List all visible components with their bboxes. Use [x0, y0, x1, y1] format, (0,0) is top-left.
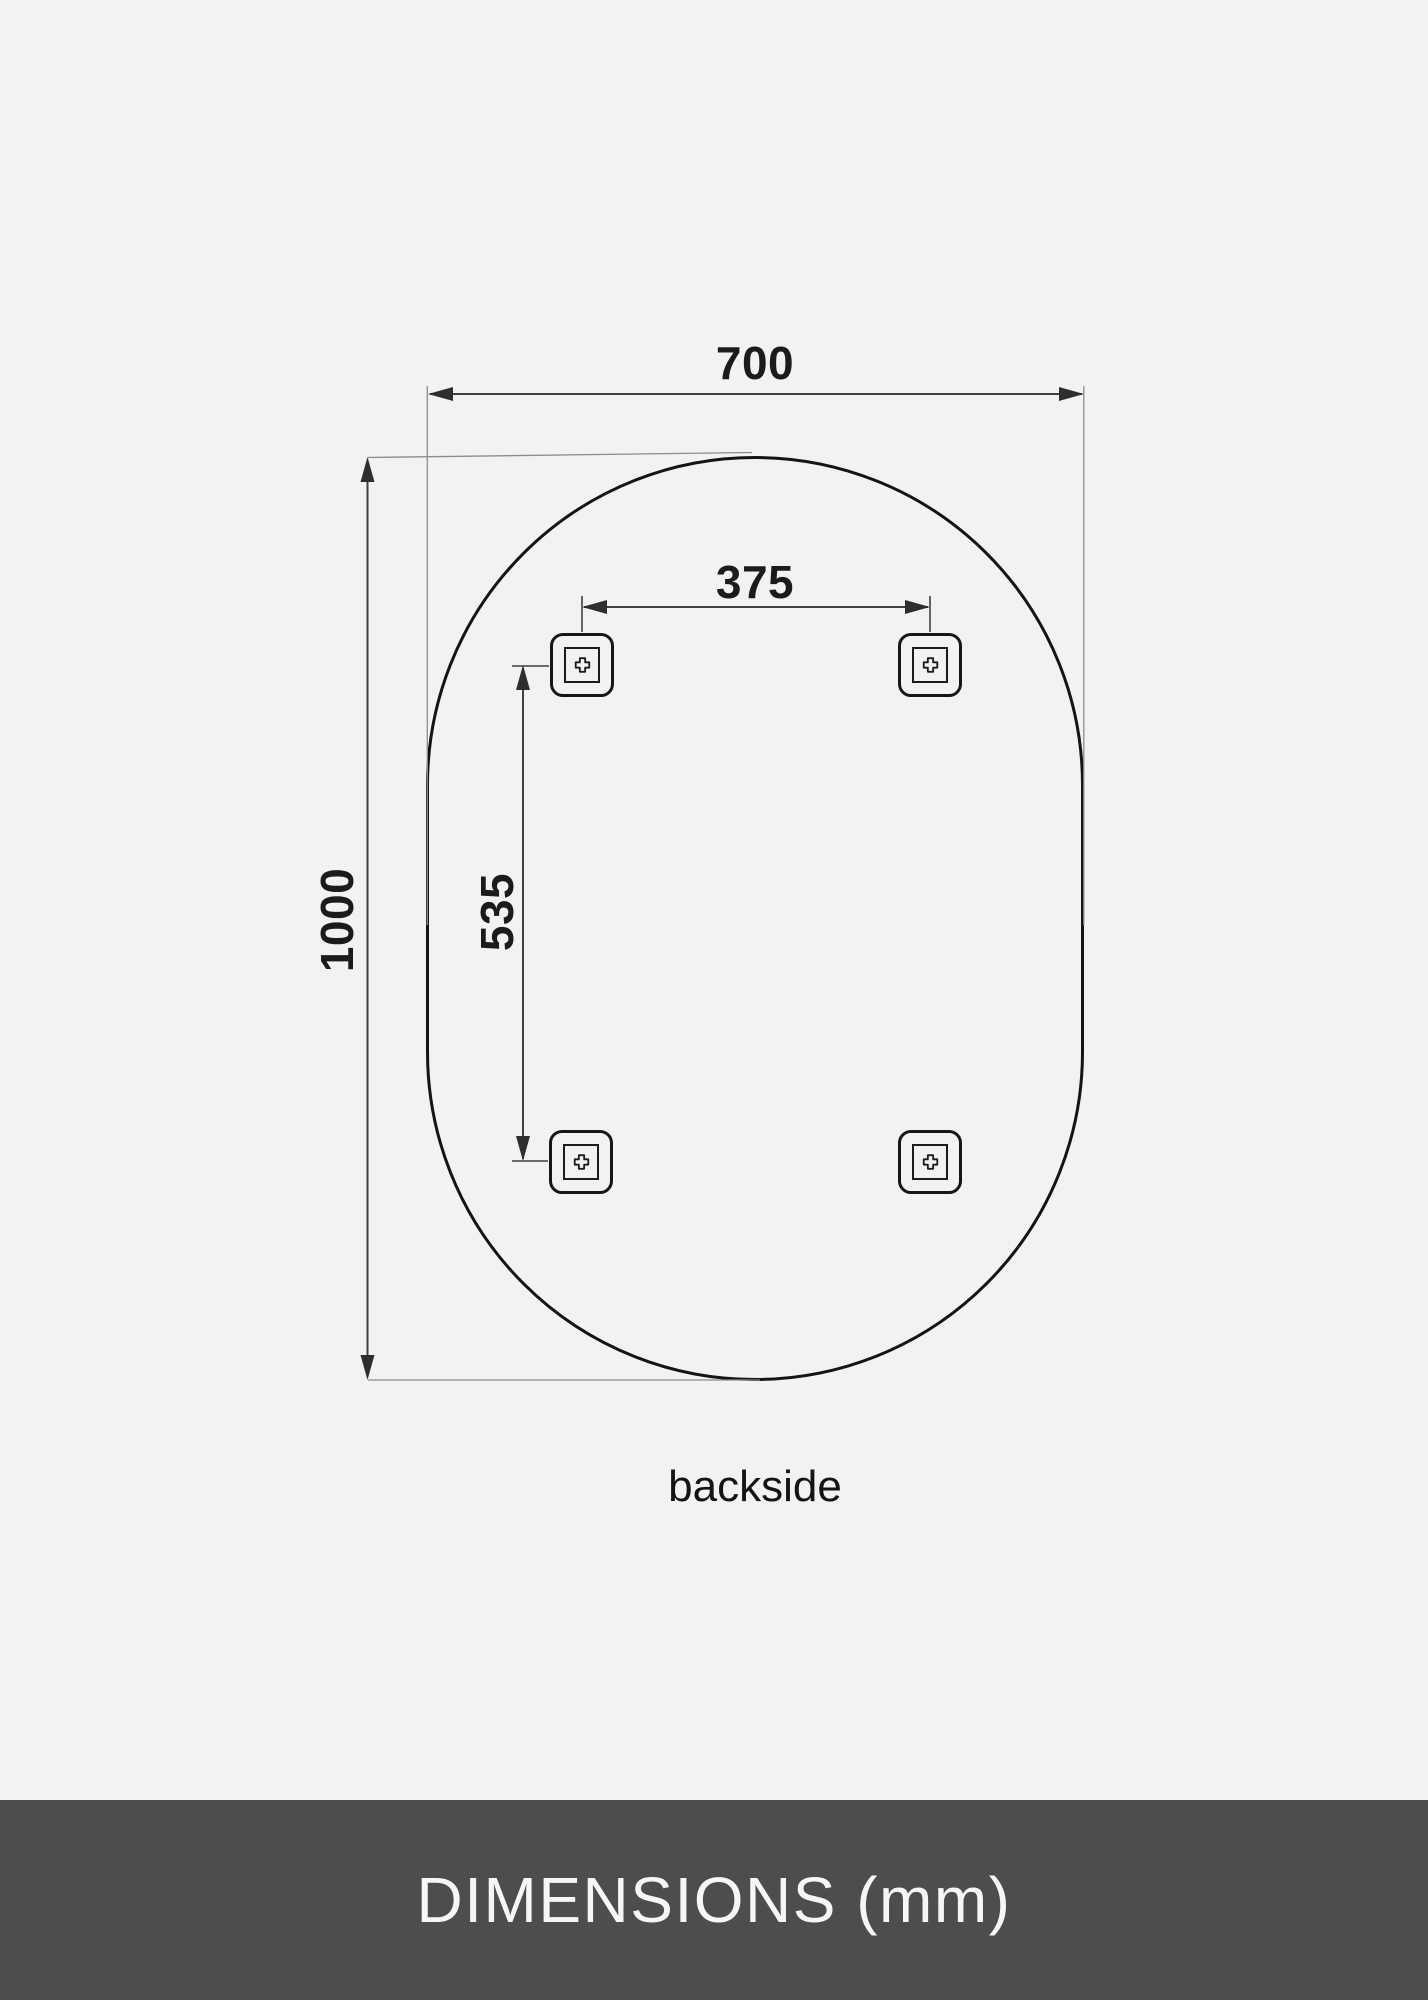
screw-cross-icon [571, 654, 594, 676]
dim-label-overall-height: 1000 [310, 868, 364, 972]
arrowhead-top-icon [516, 665, 530, 690]
arrowhead-left-icon [582, 600, 607, 614]
arrowhead-bottom-icon [361, 1355, 375, 1380]
mounting-bracket-bottom-left [549, 1130, 613, 1194]
view-label: backside [668, 1462, 842, 1512]
mounting-bracket-top-right [898, 633, 962, 697]
dimension-diagram-page: 700 1000 375 535 backs [0, 0, 1428, 2000]
bracket-inner-plate [563, 1144, 599, 1180]
dim-label-overall-width: 700 [716, 336, 794, 390]
dim-label-bracket-spacing-horizontal: 375 [716, 555, 794, 609]
dim-overall-height [361, 453, 761, 1381]
screw-cross-icon [919, 1151, 942, 1173]
arrowhead-top-icon [361, 457, 375, 482]
bracket-inner-plate [564, 647, 600, 683]
dim-overall-width [427, 386, 1084, 925]
arrowhead-bottom-icon [516, 1136, 530, 1161]
dimension-annotations [0, 0, 1428, 2000]
mounting-bracket-top-left [550, 633, 614, 697]
screw-cross-icon [570, 1151, 593, 1173]
arrowhead-right-icon [1059, 387, 1084, 401]
screw-cross-icon [919, 654, 942, 676]
mounting-bracket-bottom-right [898, 1130, 962, 1194]
bracket-inner-plate [912, 1144, 948, 1180]
dim-label-bracket-spacing-vertical: 535 [470, 873, 524, 951]
footer-bar: DIMENSIONS (mm) [0, 1800, 1428, 2000]
bracket-inner-plate [912, 647, 948, 683]
footer-title: DIMENSIONS (mm) [417, 1863, 1012, 1937]
arrowhead-right-icon [905, 600, 930, 614]
arrowhead-left-icon [428, 387, 453, 401]
extension-line-top [368, 453, 752, 458]
